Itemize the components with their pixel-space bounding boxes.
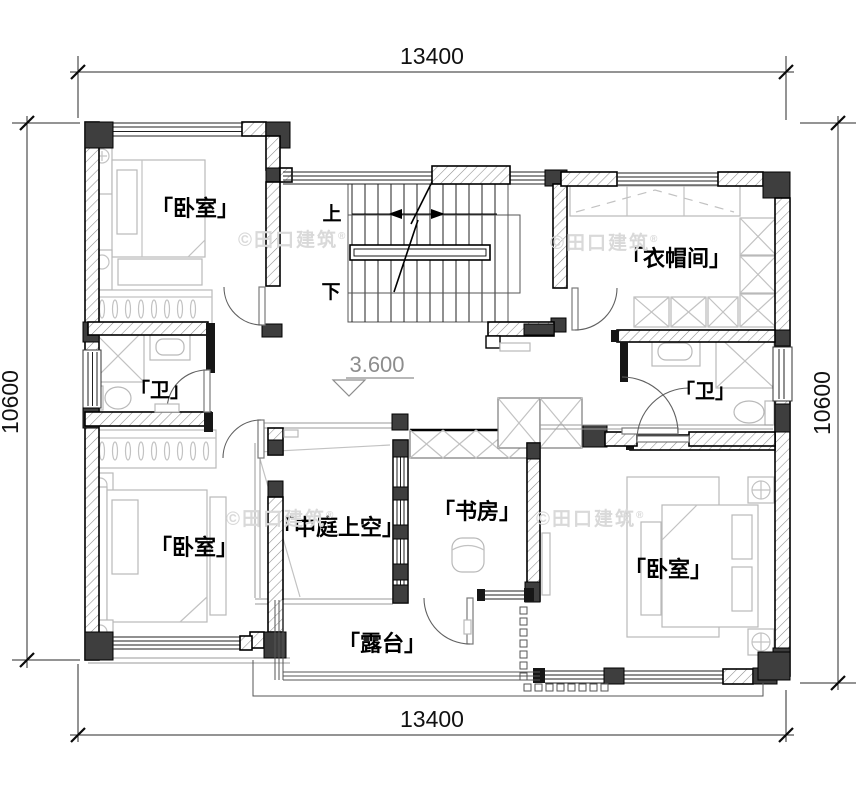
watermark: ©田口建筑® xyxy=(238,228,347,251)
dim-left-value: 10600 xyxy=(0,370,23,434)
dim-top-value: 13400 xyxy=(400,43,464,69)
dim-bottom-value: 13400 xyxy=(400,706,464,732)
elevation-triangle xyxy=(333,380,365,396)
elevation-marker: 3.600 xyxy=(333,352,414,396)
dim-right-value: 10600 xyxy=(809,371,835,435)
dimension-top: 13400 xyxy=(70,43,794,120)
watermark: ©田口建筑® xyxy=(550,231,659,254)
floor-plan-page: 13400 13400 10600 10600 xyxy=(0,0,860,800)
room-label-study: 「书房」 xyxy=(433,499,521,524)
doors xyxy=(155,287,689,644)
floor-plan-canvas: 13400 13400 10600 10600 xyxy=(0,0,860,800)
room-label-terrace: 「露台」 xyxy=(338,631,426,656)
stair-arrow-left xyxy=(388,209,402,219)
room-label-bath-right: 「卫」 xyxy=(675,379,735,403)
watermark: ©田口建筑® xyxy=(536,507,645,530)
room-label-bedroom-bottom-right: 「卧室」 xyxy=(624,557,712,582)
dimension-right: 10600 xyxy=(800,116,856,690)
dimension-left: 10600 xyxy=(0,116,80,668)
room-label-bedroom-bottom-left: 「卧室」 xyxy=(150,535,238,560)
elevation-value: 3.600 xyxy=(349,352,404,377)
stair-up-label: 上 xyxy=(322,203,341,225)
room-label-bath-left: 「卫」 xyxy=(130,378,190,402)
staircase: 上 下 xyxy=(321,180,520,322)
watermark: ©田口建筑® xyxy=(226,507,335,530)
stair-down-label: 下 xyxy=(321,282,340,303)
room-label-bedroom-top-left: 「卧室」 xyxy=(151,196,239,221)
